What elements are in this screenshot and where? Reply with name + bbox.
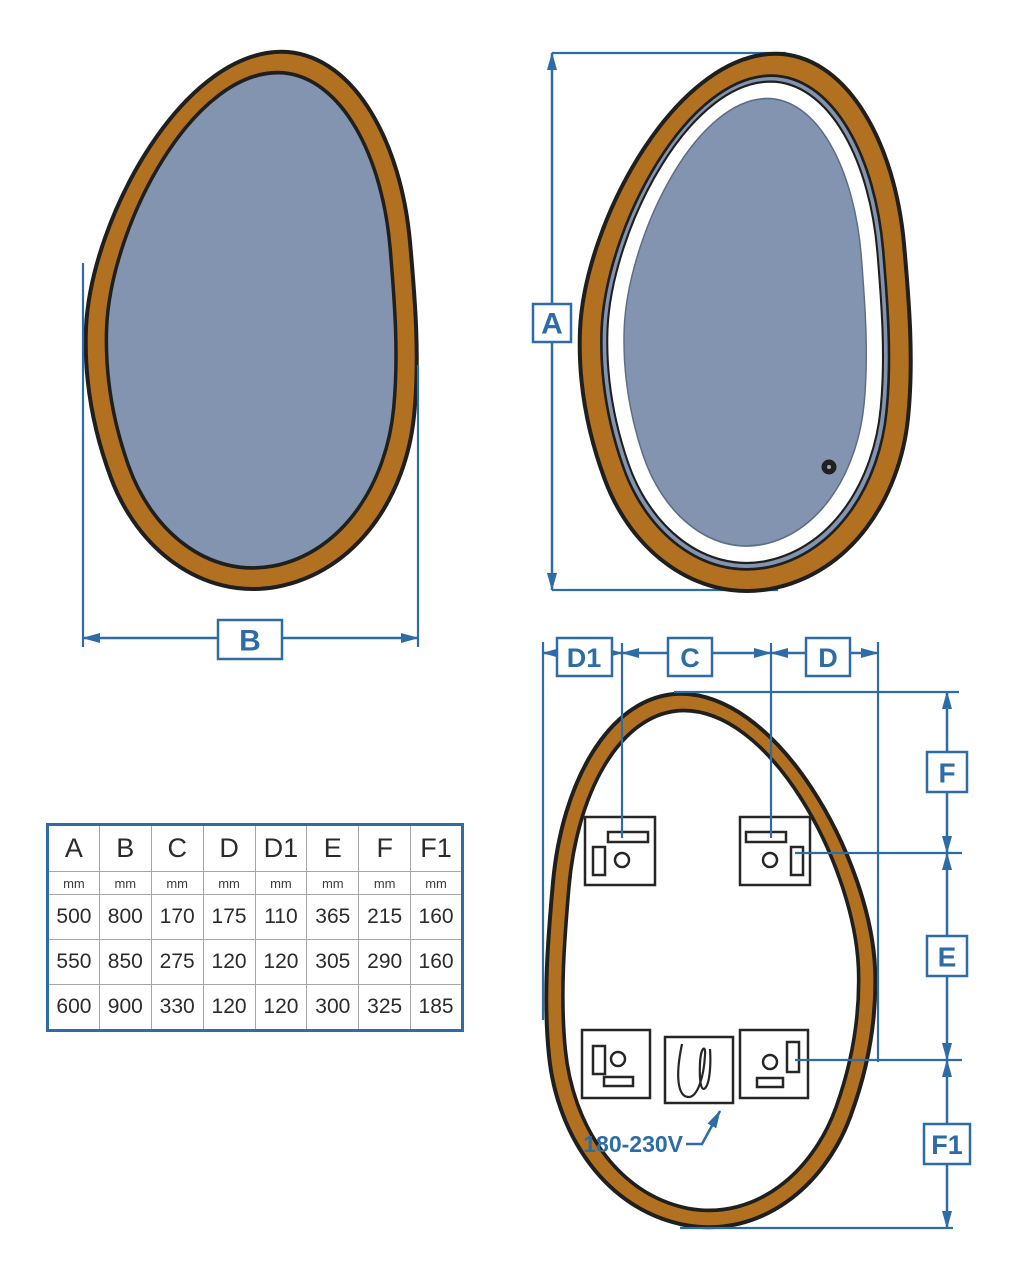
value-cell: 290 [359, 940, 411, 985]
top-dimension-labels: D1 C D [557, 638, 850, 676]
keyhole-slot-vertical [593, 1046, 605, 1074]
value-cell: 160 [411, 940, 463, 985]
f-label-text: F [938, 758, 955, 789]
a-label-text: A [541, 308, 563, 341]
b-label-text: B [239, 625, 261, 658]
unit-cell: mm [255, 872, 307, 895]
unit-cell: mm [411, 872, 463, 895]
a-dimension-label: A [533, 304, 571, 342]
voltage-label-text: 180-230V [583, 1131, 683, 1157]
header-cell: F1 [411, 825, 463, 872]
value-cell: 170 [151, 895, 203, 940]
power-cable-box [665, 1037, 733, 1103]
unit-cell: mm [307, 872, 359, 895]
table-row: 600 900 330 120 120 300 325 185 [48, 985, 463, 1031]
value-cell: 900 [99, 985, 151, 1031]
header-cell: D [203, 825, 255, 872]
unit-cell: mm [151, 872, 203, 895]
bracket-top-left [585, 817, 655, 885]
header-cell: B [99, 825, 151, 872]
keyhole-slot-horizontal [757, 1078, 783, 1087]
c-label-text: C [680, 643, 700, 673]
value-cell: 215 [359, 895, 411, 940]
b-dimension-label: B [218, 620, 282, 659]
header-cell: C [151, 825, 203, 872]
screw-hole [763, 1055, 777, 1069]
e-label-text: E [938, 942, 957, 973]
value-cell: 325 [359, 985, 411, 1031]
keyhole-slot-horizontal [746, 832, 786, 842]
value-cell: 110 [255, 895, 307, 940]
value-cell: 185 [411, 985, 463, 1031]
header-cell: E [307, 825, 359, 872]
bracket-bottom-right [740, 1030, 808, 1098]
value-cell: 160 [411, 895, 463, 940]
table-row: 550 850 275 120 120 305 290 160 [48, 940, 463, 985]
keyhole-slot-vertical [787, 1042, 799, 1072]
unit-cell: mm [203, 872, 255, 895]
mirror-spec-sheet: B A [0, 0, 1009, 1280]
unit-cell: mm [48, 872, 100, 895]
d1-label-text: D1 [567, 643, 602, 673]
value-cell: 175 [203, 895, 255, 940]
value-cell: 275 [151, 940, 203, 985]
value-cell: 600 [48, 985, 100, 1031]
value-cell: 300 [307, 985, 359, 1031]
table-units-row: mm mm mm mm mm mm mm mm [48, 872, 463, 895]
d-label-text: D [818, 643, 838, 673]
table-header-row: A B C D D1 E F F1 [48, 825, 463, 872]
screw-hole [615, 853, 629, 867]
value-cell: 800 [99, 895, 151, 940]
keyhole-slot-horizontal [604, 1077, 633, 1086]
value-cell: 120 [203, 940, 255, 985]
value-cell: 330 [151, 985, 203, 1031]
value-cell: 550 [48, 940, 100, 985]
illuminated-mirror [580, 54, 911, 591]
value-cell: 500 [48, 895, 100, 940]
back-view-diagram: D1 C D F E F1 180-230 [530, 625, 1009, 1280]
value-cell: 120 [255, 985, 307, 1031]
unit-cell: mm [359, 872, 411, 895]
touch-sensor-icon [822, 460, 837, 475]
keyhole-slot-vertical [791, 847, 803, 875]
header-cell: A [48, 825, 100, 872]
value-cell: 850 [99, 940, 151, 985]
unit-cell: mm [99, 872, 151, 895]
illuminated-view-diagram: A [510, 35, 990, 615]
value-cell: 120 [203, 985, 255, 1031]
front-view-diagram: B [60, 35, 480, 680]
header-cell: F [359, 825, 411, 872]
keyhole-slot-horizontal [608, 832, 648, 842]
keyhole-slot-vertical [593, 847, 605, 875]
bracket-top-right [740, 817, 810, 885]
screw-hole [763, 853, 777, 867]
value-cell: 365 [307, 895, 359, 940]
screw-hole [611, 1052, 625, 1066]
header-cell: D1 [255, 825, 307, 872]
bracket-bottom-left [582, 1030, 650, 1098]
table-row: 500 800 170 175 110 365 215 160 [48, 895, 463, 940]
f1-label-text: F1 [931, 1130, 963, 1160]
front-mirror [86, 52, 417, 589]
value-cell: 305 [307, 940, 359, 985]
dimensions-table: A B C D D1 E F F1 mm mm mm mm mm mm mm m… [46, 823, 464, 1032]
value-cell: 120 [255, 940, 307, 985]
